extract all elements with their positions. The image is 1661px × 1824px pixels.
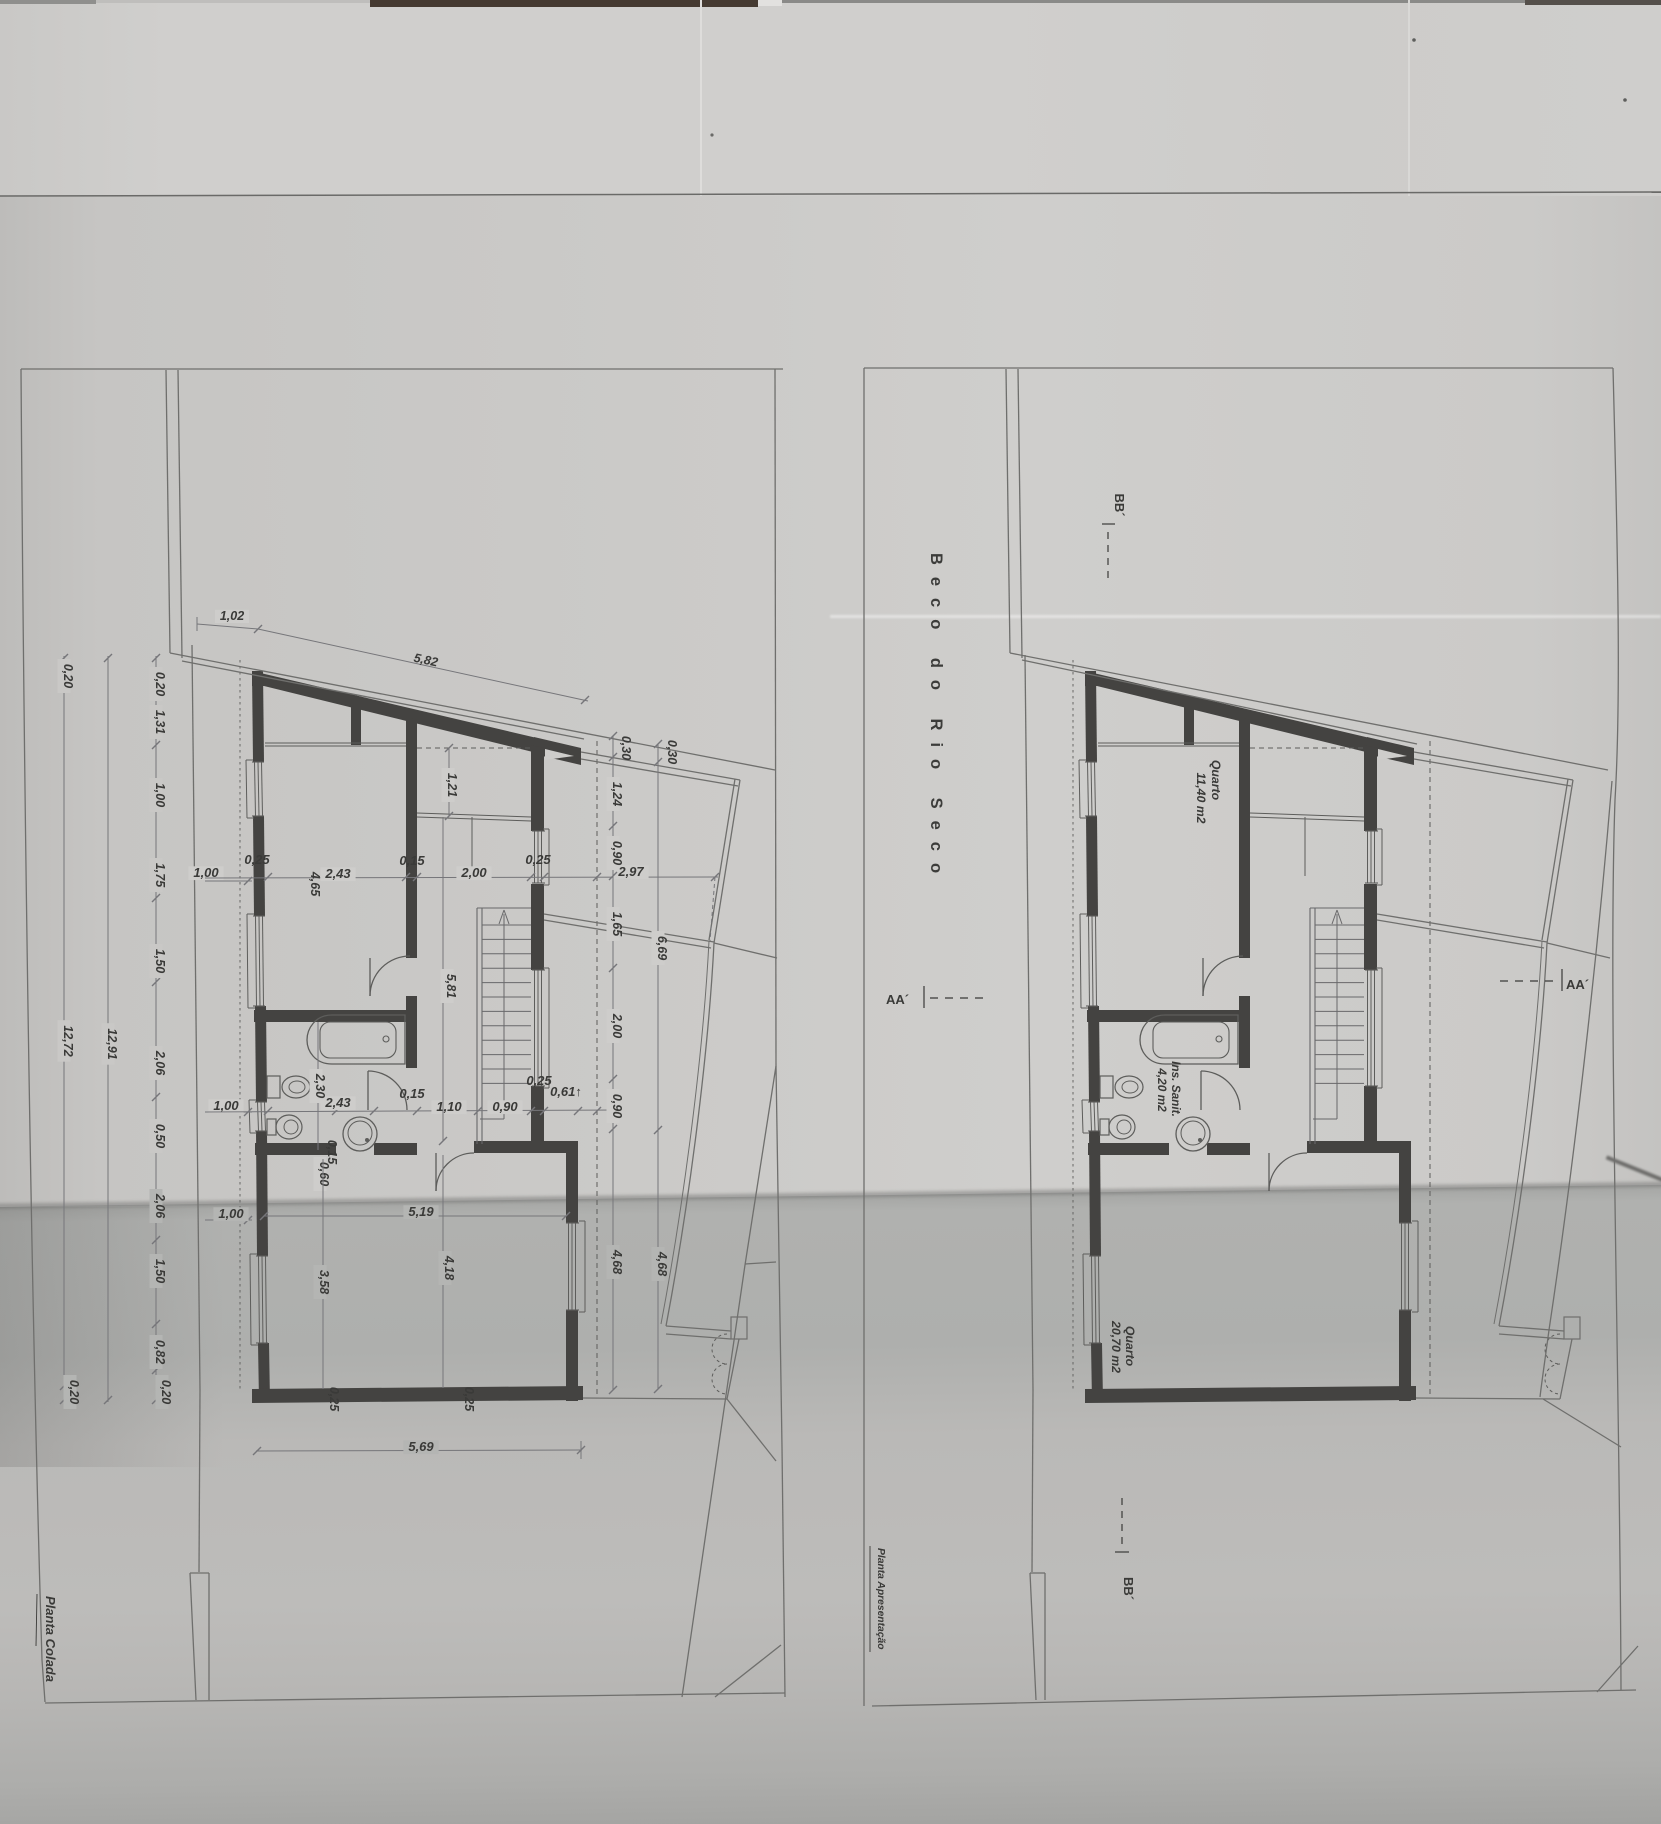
svg-text:Quarto: Quarto: [1209, 760, 1223, 801]
svg-text:0,20: 0,20: [67, 1380, 81, 1404]
svg-text:3,58: 3,58: [317, 1270, 331, 1294]
svg-text:0,90: 0,90: [492, 1099, 518, 1114]
svg-text:0,61↑: 0,61↑: [550, 1084, 582, 1099]
svg-text:BB´: BB´: [1121, 1577, 1136, 1600]
svg-text:0,90: 0,90: [610, 841, 624, 865]
svg-text:6,69: 6,69: [655, 936, 669, 960]
svg-text:1,65: 1,65: [610, 912, 624, 937]
svg-text:1,21: 1,21: [445, 773, 459, 797]
svg-text:1,24: 1,24: [610, 782, 624, 806]
svg-text:0,60: 0,60: [317, 1162, 331, 1186]
svg-text:AA´: AA´: [886, 992, 909, 1007]
svg-text:2,06: 2,06: [153, 1050, 167, 1076]
svg-text:2,43: 2,43: [324, 1095, 351, 1110]
svg-text:0,15: 0,15: [399, 1086, 425, 1101]
svg-text:2,43: 2,43: [324, 866, 351, 881]
svg-text:1,00: 1,00: [213, 1098, 239, 1113]
svg-text:2,97: 2,97: [617, 864, 644, 879]
svg-text:0,25: 0,25: [244, 852, 270, 867]
svg-text:0,20: 0,20: [61, 664, 75, 688]
svg-text:0,30: 0,30: [665, 740, 679, 764]
svg-text:0,50: 0,50: [153, 1124, 167, 1148]
svg-text:2,06: 2,06: [153, 1193, 167, 1219]
svg-text:0,25: 0,25: [327, 1387, 341, 1412]
svg-text:B e c o d o R i o S e c: B e c o d o R i o S e c o: [927, 553, 945, 877]
svg-text:12,72: 12,72: [61, 1025, 75, 1056]
svg-text:0,90: 0,90: [610, 1094, 624, 1118]
svg-text:1,50: 1,50: [153, 949, 167, 973]
svg-text:4,68: 4,68: [610, 1249, 624, 1274]
svg-text:AA´: AA´: [1566, 977, 1589, 992]
svg-text:4,18: 4,18: [442, 1255, 456, 1280]
svg-text:4,20 m2: 4,20 m2: [1155, 1067, 1169, 1112]
svg-text:5,69: 5,69: [408, 1439, 434, 1454]
svg-text:2,00: 2,00: [460, 865, 487, 880]
svg-text:12,91: 12,91: [105, 1028, 119, 1059]
svg-text:0,30: 0,30: [619, 736, 633, 760]
svg-text:5,81: 5,81: [444, 974, 458, 998]
svg-text:BB´: BB´: [1112, 493, 1127, 516]
svg-text:1,50: 1,50: [153, 1259, 167, 1283]
svg-text:1,00: 1,00: [153, 783, 167, 807]
svg-text:Ins. Sanit.: Ins. Sanit.: [1169, 1061, 1183, 1117]
svg-text:20,70 m2: 20,70 m2: [1109, 1320, 1123, 1373]
svg-text:5,82: 5,82: [412, 651, 439, 670]
svg-text:0,25: 0,25: [525, 852, 551, 867]
svg-text:Planta Apresentação: Planta Apresentação: [875, 1548, 886, 1649]
svg-text:0,20: 0,20: [153, 672, 167, 696]
svg-text:2,00: 2,00: [610, 1013, 624, 1038]
svg-text:1,31: 1,31: [153, 710, 167, 734]
svg-text:4,68: 4,68: [655, 1251, 669, 1276]
svg-text:0,15: 0,15: [399, 853, 425, 868]
svg-text:1,75: 1,75: [153, 863, 167, 888]
svg-text:1,02: 1,02: [220, 609, 244, 623]
svg-text:1,00: 1,00: [218, 1206, 244, 1221]
svg-text:0,20: 0,20: [159, 1380, 173, 1404]
svg-text:0,25: 0,25: [526, 1073, 552, 1088]
svg-text:4,65: 4,65: [308, 871, 322, 897]
svg-text:Planta Colada: Planta Colada: [43, 1596, 58, 1682]
svg-text:2,30: 2,30: [313, 1073, 327, 1098]
svg-text:11,40 m2: 11,40 m2: [1194, 772, 1208, 823]
svg-text:1,10: 1,10: [436, 1099, 462, 1114]
svg-text:0,82: 0,82: [153, 1340, 167, 1364]
svg-text:5,19: 5,19: [408, 1204, 434, 1219]
svg-text:0,25: 0,25: [462, 1387, 476, 1412]
svg-text:Quarto: Quarto: [1123, 1326, 1137, 1367]
